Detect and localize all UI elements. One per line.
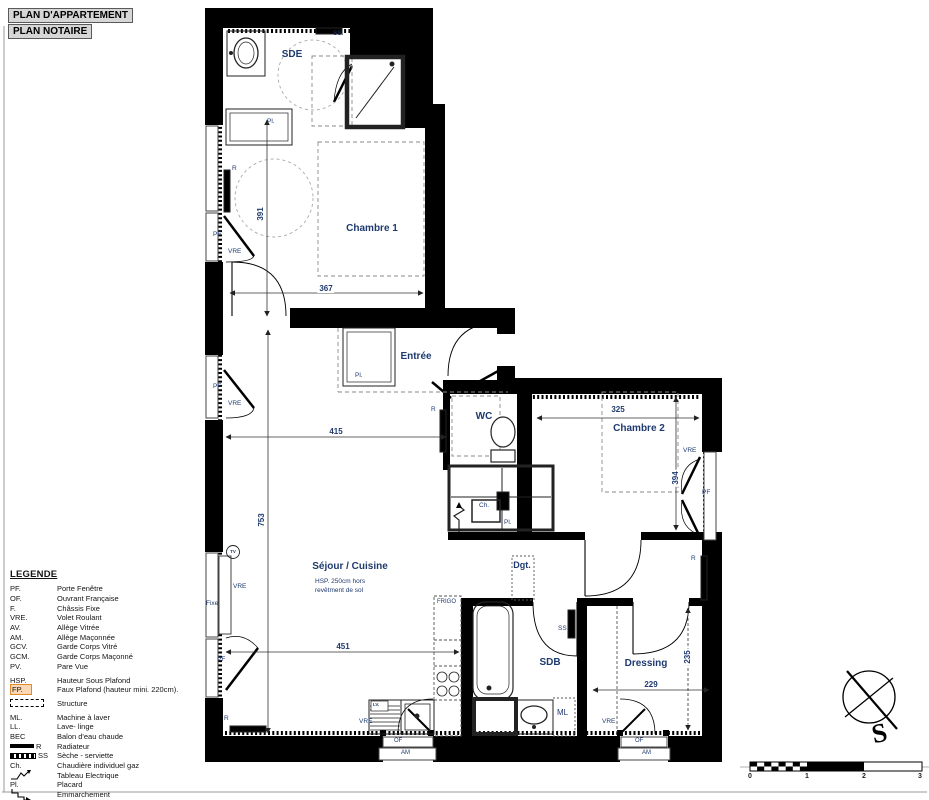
closet-entree bbox=[343, 328, 395, 386]
scale-tick-3: 3 bbox=[918, 773, 922, 780]
legend-row-pf: PF.Porte Fenêtre bbox=[10, 584, 208, 594]
scale-tick-1: 1 bbox=[805, 773, 809, 780]
dim-chambre1-height: 391 bbox=[257, 205, 265, 222]
shower bbox=[347, 57, 403, 127]
legend-row-seche-serviette: SSSèche - serviette bbox=[10, 751, 208, 761]
tag-radiator-sejour: R bbox=[224, 716, 229, 723]
dim-chambre2-height: 394 bbox=[672, 469, 680, 486]
tag-of-kitchen-window: OF bbox=[394, 738, 402, 744]
legend-row-av: AV.Allège Vitrée bbox=[10, 623, 208, 633]
tag-placard-entree: Pl. bbox=[355, 373, 363, 380]
room-label-dgt: Dgt. bbox=[513, 561, 531, 570]
room-label-chambre2: Chambre 2 bbox=[613, 424, 665, 434]
legend-row-vre: VRE.Volet Roulant bbox=[10, 613, 208, 623]
legend-row-pv: PV.Pare Vue bbox=[10, 662, 208, 672]
tag-frigo: FRIGO bbox=[437, 599, 456, 605]
radiator-wc bbox=[440, 410, 446, 452]
tag-pf-chambre1: PF bbox=[213, 232, 221, 239]
tag-pf-sejour-1: PF bbox=[213, 384, 221, 391]
tag-vre-sejour-1: VRE bbox=[228, 401, 241, 408]
sejour-note-2: revêtment de sol bbox=[315, 588, 363, 595]
legend-row-am: AM.Allège Maçonnée bbox=[10, 632, 208, 642]
floorplan-page: PLAN D'APPARTEMENT PLAN NOTAIRE SDE Cham… bbox=[0, 0, 929, 800]
tag-radiator-chambre1: R bbox=[232, 166, 237, 173]
towel-radiator-sdb bbox=[568, 610, 575, 638]
legend-row-ml: ML.Machine à laver bbox=[10, 712, 208, 722]
cabinet-under-wc bbox=[449, 466, 553, 530]
tag-ml: ML bbox=[557, 709, 568, 717]
dim-chambre2-width: 325 bbox=[609, 406, 626, 414]
tag-ss-sde: SS. bbox=[333, 31, 343, 38]
room-label-chambre1: Chambre 1 bbox=[346, 224, 398, 234]
tag-chaudiere: Ch. bbox=[479, 503, 489, 510]
legend-row-structure: Structure bbox=[10, 699, 208, 709]
electrical-panel-symbol-legend bbox=[10, 769, 32, 781]
tag-am-kitchen-window: AM bbox=[401, 750, 410, 756]
tag-placard-dgt: Pl. bbox=[504, 520, 512, 527]
tag-vre-chambre2: VRE bbox=[683, 448, 696, 455]
washbasin-sde bbox=[227, 31, 265, 76]
scale-bar bbox=[740, 762, 929, 771]
legend-row-emmarchement: Emmarchement bbox=[10, 790, 208, 800]
dim-dressing-width: 229 bbox=[642, 681, 659, 689]
tag-vre-sejour-2: VRE bbox=[233, 584, 246, 591]
radiator-chambre2 bbox=[701, 556, 707, 600]
plan-subtitle: PLAN NOTAIRE bbox=[8, 24, 92, 39]
dim-sejour-width-1: 415 bbox=[327, 428, 344, 436]
tag-radiator-chambre2: R bbox=[691, 556, 696, 563]
tag-vre-kitchen-window: VRE bbox=[359, 719, 372, 726]
dim-sejour-width-2: 451 bbox=[334, 643, 351, 651]
legend-row-bec: BECBalon d'eau chaude bbox=[10, 732, 208, 742]
legend: LEGENDE PF.Porte Fenêtre OF.Ouvrant Fran… bbox=[10, 569, 208, 799]
legend-row-of: OF.Ouvrant Française bbox=[10, 594, 208, 604]
steps-symbol bbox=[10, 788, 32, 800]
legend-row-ll: LL.Lave- linge bbox=[10, 722, 208, 732]
tag-vre-dressing-window: VRE bbox=[602, 719, 615, 726]
legend-title: LEGENDE bbox=[10, 569, 208, 580]
tag-ss-sdb: SS bbox=[558, 626, 567, 633]
structure-symbol bbox=[10, 699, 44, 707]
room-label-entree: Entrée bbox=[400, 352, 431, 362]
tag-pf-chambre2: PF bbox=[702, 490, 710, 497]
dim-chambre1-width: 367 bbox=[317, 285, 334, 293]
toilet bbox=[491, 417, 515, 462]
bathtub bbox=[473, 602, 513, 700]
scale-tick-2: 2 bbox=[862, 773, 866, 780]
washbasin-sdb bbox=[516, 700, 553, 734]
legend-row-gcv: GCV.Garde Corps Vitré bbox=[10, 642, 208, 652]
room-label-sde: SDE bbox=[282, 50, 303, 60]
closet-sde bbox=[226, 109, 292, 145]
room-label-sejour: Séjour / Cuisine bbox=[312, 562, 388, 572]
legend-row-f: F.Châssis Fixe bbox=[10, 603, 208, 613]
fp-highlight: FP. bbox=[10, 684, 32, 695]
stove bbox=[437, 672, 459, 696]
wall-segments bbox=[205, 8, 722, 762]
tag-tv: TV bbox=[230, 550, 236, 555]
tag-lv: LV. bbox=[373, 703, 379, 708]
room-label-wc: WC bbox=[476, 412, 493, 422]
legend-row-tableau: Tableau Electrique bbox=[10, 770, 208, 780]
tag-radiator-wc: R bbox=[431, 407, 436, 414]
tag-pf-sejour-2: PF bbox=[217, 657, 225, 664]
tag-am-dressing-window: AM bbox=[642, 750, 651, 756]
dim-dressing-height: 235 bbox=[684, 648, 692, 665]
radiator-symbol bbox=[10, 744, 34, 748]
legend-row-gcm: GCM.Garde Corps Maçonné bbox=[10, 652, 208, 662]
tag-of-dressing-window: OF bbox=[635, 738, 643, 744]
plan-title: PLAN D'APPARTEMENT bbox=[8, 8, 133, 23]
towel-radiator-symbol bbox=[10, 753, 36, 759]
sejour-note-1: HSP. 250cm hors bbox=[315, 579, 365, 586]
dim-sejour-height: 753 bbox=[258, 511, 266, 528]
equipment-block bbox=[474, 699, 516, 734]
scale-tick-0: 0 bbox=[748, 773, 752, 780]
legend-row-radiateur: RRadiateur bbox=[10, 741, 208, 751]
radiator-sejour bbox=[230, 726, 266, 732]
tag-placard-sde: Pl. bbox=[267, 119, 275, 126]
electrical-panel-symbol bbox=[454, 502, 464, 532]
room-label-sdb: SDB bbox=[539, 658, 560, 668]
legend-row-fp: FP.Faux Plafond (hauteur mini. 220cm). bbox=[10, 685, 208, 695]
room-label-dressing: Dressing bbox=[625, 659, 668, 669]
tag-vre-chambre1: VRE bbox=[228, 249, 241, 256]
radiator-chambre1 bbox=[224, 170, 230, 212]
